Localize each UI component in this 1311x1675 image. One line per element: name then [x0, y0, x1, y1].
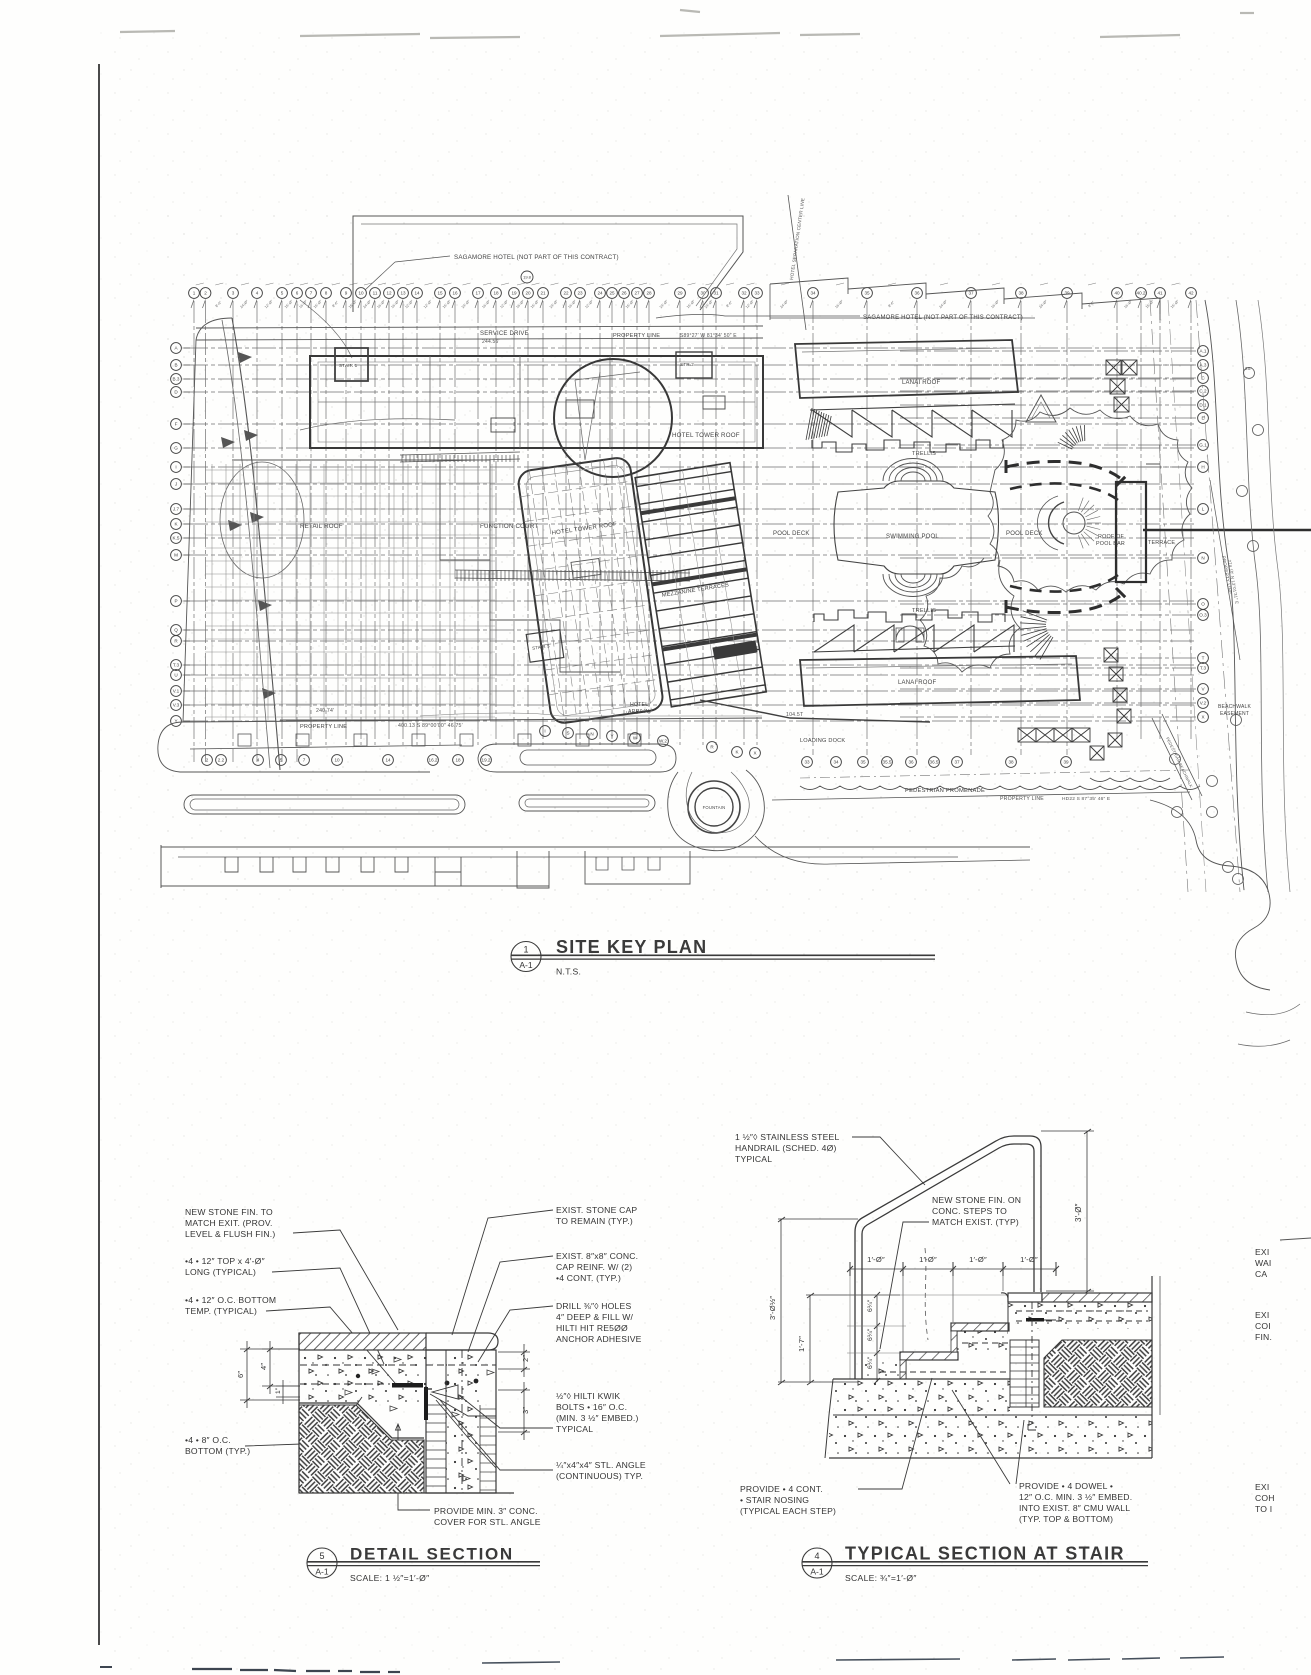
svg-text:29: 29: [677, 291, 683, 296]
svg-text:TYPICAL SECTION AT STAIR: TYPICAL SECTION AT STAIR: [845, 1544, 1125, 1564]
svg-text:W.2: W.2: [659, 739, 667, 744]
svg-text:35: 35: [860, 760, 866, 765]
svg-text:DRILL ⅜″◊ HOLES: DRILL ⅜″◊ HOLES: [556, 1301, 631, 1311]
svg-text:1: 1: [193, 291, 196, 296]
svg-text:21: 21: [540, 291, 546, 296]
svg-text:BOLTS • 16″ O.C.: BOLTS • 16″ O.C.: [556, 1402, 627, 1412]
svg-text:3′-Ø″: 3′-Ø″: [1074, 1203, 1083, 1222]
svg-text:(TYPICAL EACH STEP): (TYPICAL EACH STEP): [740, 1506, 836, 1516]
svg-text:COVER FOR STL. ANGLE: COVER FOR STL. ANGLE: [434, 1517, 541, 1527]
svg-text:TO REMAIN (TYP.): TO REMAIN (TYP.): [556, 1216, 633, 1226]
svg-text:C.2: C.2: [1199, 389, 1207, 394]
svg-text:PROPERTY LINE: PROPERTY LINE: [1000, 796, 1044, 802]
svg-text:EXI: EXI: [1255, 1482, 1269, 1492]
svg-text:U: U: [174, 673, 177, 678]
svg-text:COH: COH: [1255, 1493, 1275, 1503]
svg-text:3″: 3″: [521, 1407, 530, 1414]
svg-text:27: 27: [634, 291, 640, 296]
svg-text:Q: Q: [174, 628, 178, 633]
svg-text:ANCHOR ADHESIVE: ANCHOR ADHESIVE: [556, 1334, 642, 1344]
svg-text:L: L: [1202, 507, 1205, 512]
svg-text:LANAI ROOF: LANAI ROOF: [898, 680, 936, 686]
svg-text:TYPICAL: TYPICAL: [556, 1424, 593, 1434]
svg-text:TEMP. (TYPICAL): TEMP. (TYPICAL): [185, 1306, 257, 1316]
svg-text:CA: CA: [1255, 1269, 1267, 1279]
svg-text:LANAI ROOF: LANAI ROOF: [902, 380, 940, 386]
svg-text:P: P: [174, 599, 177, 604]
svg-text:4″ DEEP & FILL W/: 4″ DEEP & FILL W/: [556, 1312, 634, 1322]
svg-text:T.3: T.3: [1200, 666, 1207, 671]
svg-text:H: H: [1201, 465, 1204, 470]
svg-text:38: 38: [1018, 291, 1024, 296]
svg-text:PROPERTY LINE: PROPERTY LINE: [613, 333, 660, 339]
svg-text:1′-Ø″: 1′-Ø″: [969, 1255, 987, 1264]
svg-text:FOUNTAIN: FOUNTAIN: [703, 805, 726, 810]
svg-text:3: 3: [232, 291, 235, 296]
svg-text:DETAIL SECTION: DETAIL SECTION: [350, 1545, 514, 1564]
svg-text:Y: Y: [610, 734, 613, 739]
svg-text:36.5: 36.5: [930, 760, 939, 765]
svg-text:HILTI HIT RE5ØØ: HILTI HIT RE5ØØ: [556, 1323, 628, 1333]
svg-text:TRELLIS: TRELLIS: [912, 451, 936, 457]
svg-text:PROVIDE MIN. 3″ CONC.: PROVIDE MIN. 3″ CONC.: [434, 1506, 538, 1516]
svg-text:EXI: EXI: [1255, 1247, 1269, 1257]
svg-text:N: N: [1201, 556, 1204, 561]
svg-text:V.1: V.1: [173, 689, 180, 694]
svg-text:1″: 1″: [275, 1387, 282, 1394]
svg-text:20: 20: [525, 291, 531, 296]
svg-text:400.13 S 89°00′00″ 46.75′: 400.13 S 89°00′00″ 46.75′: [398, 723, 463, 729]
svg-text:COI: COI: [1255, 1321, 1271, 1331]
svg-text:½″◊ HILTI KWIK: ½″◊ HILTI KWIK: [556, 1391, 620, 1401]
svg-text:36: 36: [908, 760, 914, 765]
svg-text:2: 2: [206, 758, 209, 763]
svg-text:A-1: A-1: [315, 1567, 329, 1577]
svg-text:40: 40: [1114, 291, 1120, 296]
svg-text:POOL BAR: POOL BAR: [1096, 541, 1125, 547]
svg-text:(CONTINUOUS) TYP.: (CONTINUOUS) TYP.: [556, 1471, 643, 1481]
svg-text:K.5: K.5: [173, 536, 180, 541]
svg-text:FIN.: FIN.: [1255, 1332, 1272, 1342]
svg-text:•4 CONT. (TYP.): •4 CONT. (TYP.): [556, 1273, 621, 1283]
svg-text:37: 37: [954, 760, 960, 765]
svg-text:15: 15: [437, 291, 443, 296]
svg-text:41: 41: [1157, 291, 1163, 296]
svg-text:16: 16: [452, 291, 458, 296]
svg-text:SAGAMORE HOTEL (NOT PART OF TH: SAGAMORE HOTEL (NOT PART OF THIS CONTRAC…: [454, 254, 619, 261]
svg-text:SAGAMORE HOTEL (NOT PART OF TH: SAGAMORE HOTEL (NOT PART OF THIS CONTRAC…: [863, 315, 1023, 321]
svg-text:(TYP. TOP & BOTTOM): (TYP. TOP & BOTTOM): [1019, 1514, 1113, 1524]
svg-text:11: 11: [373, 291, 378, 296]
svg-text:N.T.S.: N.T.S.: [556, 967, 581, 977]
svg-text:EXIST. 8″x8″ CONC.: EXIST. 8″x8″ CONC.: [556, 1251, 638, 1261]
svg-text:104.5T: 104.5T: [786, 712, 804, 718]
svg-text:LEVEL & FLUSH FIN.): LEVEL & FLUSH FIN.): [185, 1229, 275, 1239]
svg-text:14: 14: [414, 291, 420, 296]
svg-text:CONC. STEPS TO: CONC. STEPS TO: [932, 1206, 1007, 1216]
svg-text:HD22 S 87°35′ 46″ E: HD22 S 87°35′ 46″ E: [1062, 796, 1110, 802]
svg-text:X: X: [753, 751, 756, 756]
svg-text:•4 • 8″ O.C.: •4 • 8″ O.C.: [185, 1435, 231, 1445]
svg-text:5: 5: [319, 1551, 324, 1561]
svg-text:TERRACE: TERRACE: [1148, 540, 1175, 546]
svg-text:POOL DECK: POOL DECK: [773, 531, 810, 537]
svg-text:8: 8: [325, 291, 328, 296]
svg-text:5: 5: [280, 758, 283, 763]
svg-text:19.8: 19.8: [523, 274, 532, 279]
svg-text:A.1: A.1: [1200, 349, 1207, 354]
svg-text:J: J: [175, 482, 177, 487]
svg-text:34: 34: [833, 760, 839, 765]
svg-text:BOTTOM (TYP.): BOTTOM (TYP.): [185, 1446, 250, 1456]
svg-text:G: G: [174, 446, 178, 451]
svg-text:O: O: [1201, 602, 1205, 607]
svg-text:12: 12: [386, 291, 392, 296]
svg-text:WAI: WAI: [1255, 1258, 1272, 1268]
svg-text:TO I: TO I: [1255, 1504, 1272, 1514]
svg-text:1: 1: [523, 945, 528, 955]
svg-text:• STAIR NOSING: • STAIR NOSING: [740, 1495, 809, 1505]
svg-text:M: M: [174, 553, 178, 558]
svg-text:17: 17: [475, 291, 481, 296]
svg-text:4: 4: [814, 1551, 819, 1561]
svg-text:24: 24: [597, 291, 603, 296]
svg-text:NEW STONE FIN. TO: NEW STONE FIN. TO: [185, 1207, 273, 1217]
svg-text:4: 4: [257, 758, 260, 763]
svg-text:T.3: T.3: [173, 663, 180, 668]
svg-text:2.2: 2.2: [218, 758, 225, 763]
svg-text:SCALE: 1 ½″=1′-Ø″: SCALE: 1 ½″=1′-Ø″: [350, 1573, 429, 1583]
svg-text:S: S: [566, 731, 569, 736]
svg-text:O.3: O.3: [1199, 613, 1207, 618]
svg-text:34: 34: [810, 291, 816, 296]
svg-text:V.2: V.2: [1200, 701, 1207, 706]
svg-text:22: 22: [563, 291, 569, 296]
svg-text:SCALE: ¾″=1′-Ø″: SCALE: ¾″=1′-Ø″: [845, 1573, 917, 1583]
svg-text:PROPERTY LINE: PROPERTY LINE: [300, 724, 347, 730]
svg-text:14: 14: [385, 758, 391, 763]
svg-text:6: 6: [296, 291, 299, 296]
svg-text:B: B: [174, 363, 177, 368]
svg-text:33: 33: [804, 760, 810, 765]
svg-text:F: F: [175, 422, 178, 427]
svg-text:B.3: B.3: [173, 377, 180, 382]
svg-text:I: I: [175, 465, 176, 470]
svg-text:1′-Ø″: 1′-Ø″: [919, 1255, 937, 1264]
svg-text:28: 28: [646, 291, 652, 296]
svg-text:23: 23: [577, 291, 583, 296]
svg-text:19.2: 19.2: [482, 758, 491, 763]
svg-text:3′-Ø½″: 3′-Ø½″: [768, 1296, 777, 1320]
svg-text:STAIR 1: STAIR 1: [339, 363, 358, 368]
svg-text:35: 35: [864, 291, 870, 296]
svg-text:LONG (TYPICAL): LONG (TYPICAL): [185, 1267, 256, 1277]
svg-text:7: 7: [310, 291, 313, 296]
svg-text:42: 42: [1188, 291, 1194, 296]
svg-text:HANDRAIL (SCHED. 4Ø): HANDRAIL (SCHED. 4Ø): [735, 1143, 837, 1153]
svg-text:W: W: [633, 736, 638, 741]
svg-text:CAP REINF. W/ (2): CAP REINF. W/ (2): [556, 1262, 632, 1272]
svg-text:25′: 25′: [1245, 366, 1252, 372]
svg-text:HOTEL: HOTEL: [630, 702, 648, 708]
svg-text:BEACHWALK: BEACHWALK: [1218, 704, 1251, 710]
svg-text:E: E: [1201, 416, 1204, 421]
svg-text:18: 18: [455, 758, 461, 763]
svg-text:5: 5: [281, 291, 284, 296]
svg-text:33: 33: [754, 291, 760, 296]
svg-text:D.1: D.1: [1199, 403, 1207, 408]
svg-text:EXIST. STONE CAP: EXIST. STONE CAP: [556, 1205, 637, 1215]
svg-text:12″ O.C. MIN. 3 ½″ EMBED.: 12″ O.C. MIN. 3 ½″ EMBED.: [1019, 1492, 1132, 1502]
svg-text:SERVICE DRIVE: SERVICE DRIVE: [480, 331, 529, 337]
svg-text:39: 39: [1064, 291, 1070, 296]
svg-text:V.3: V.3: [173, 703, 180, 708]
svg-text:16.2: 16.2: [429, 758, 438, 763]
svg-text:T: T: [1202, 656, 1205, 661]
svg-text:MATCH EXIST. (TYP): MATCH EXIST. (TYP): [932, 1217, 1019, 1227]
svg-text:35.5: 35.5: [883, 760, 892, 765]
svg-text:(MIN. 3 ½″ EMBED.): (MIN. 3 ½″ EMBED.): [556, 1413, 639, 1423]
svg-text:25: 25: [609, 291, 615, 296]
svg-text:•4 • 12″ TOP x 4′-Ø″: •4 • 12″ TOP x 4′-Ø″: [185, 1256, 265, 1266]
svg-text:¼″x4″x4″ STL. ANGLE: ¼″x4″x4″ STL. ANGLE: [556, 1460, 646, 1470]
svg-text:S89°27′ W 81°34′ 50″ E: S89°27′ W 81°34′ 50″ E: [680, 333, 737, 339]
svg-text:TYPICAL: TYPICAL: [735, 1154, 772, 1164]
svg-text:INTO EXIST. 8″ CMU WALL: INTO EXIST. 8″ CMU WALL: [1019, 1503, 1130, 1513]
svg-text:J.7: J.7: [173, 507, 180, 512]
svg-text:SWIMMING POOL: SWIMMING POOL: [886, 534, 939, 540]
svg-text:ARRIVAL: ARRIVAL: [628, 709, 651, 715]
svg-text:26: 26: [621, 291, 627, 296]
svg-text:13: 13: [400, 291, 406, 296]
svg-text:1′-Ø″: 1′-Ø″: [1020, 1255, 1038, 1264]
svg-text:PROVIDE • 4 CONT.: PROVIDE • 4 CONT.: [740, 1484, 823, 1494]
svg-text:37: 37: [968, 291, 974, 296]
svg-text:HOTEL TOWER ROOF: HOTEL TOWER ROOF: [672, 432, 740, 439]
svg-text:G.1: G.1: [1199, 443, 1207, 448]
svg-text:9: 9: [345, 291, 348, 296]
svg-text:36: 36: [914, 291, 920, 296]
svg-text:LOADING DOCK: LOADING DOCK: [800, 738, 845, 744]
svg-text:•4 • 12″ O.C. BOTTOM: •4 • 12″ O.C. BOTTOM: [185, 1295, 276, 1305]
svg-text:POOL DECK: POOL DECK: [1006, 531, 1043, 537]
svg-text:10: 10: [358, 291, 364, 296]
svg-text:RETAIL ROOF: RETAIL ROOF: [300, 523, 343, 530]
svg-text:A-1: A-1: [810, 1567, 824, 1577]
svg-text:MATCH EXIT. (PROV.: MATCH EXIT. (PROV.: [185, 1218, 273, 1228]
svg-text:6¼″: 6¼″: [867, 1328, 874, 1341]
svg-text:4″: 4″: [259, 1363, 268, 1370]
svg-text:7: 7: [303, 758, 306, 763]
svg-text:38: 38: [1008, 760, 1014, 765]
svg-text:X: X: [1201, 715, 1204, 720]
svg-text:NEW STONE FIN. ON: NEW STONE FIN. ON: [932, 1195, 1021, 1205]
svg-text:32: 32: [741, 291, 747, 296]
svg-text:N: N: [590, 732, 593, 737]
svg-text:1′-7″: 1′-7″: [797, 1336, 806, 1352]
svg-text:1′-Ø″: 1′-Ø″: [867, 1255, 885, 1264]
svg-text:FUNCTION COURT: FUNCTION COURT: [480, 523, 538, 530]
svg-text:EXI: EXI: [1255, 1310, 1269, 1320]
svg-text:TRELLIS: TRELLIS: [912, 608, 936, 614]
svg-text:6″: 6″: [236, 1371, 245, 1378]
svg-text:4: 4: [256, 291, 259, 296]
svg-text:244.56′: 244.56′: [482, 339, 500, 345]
svg-text:19: 19: [511, 291, 517, 296]
svg-text:2″: 2″: [521, 1355, 530, 1362]
svg-text:6¼″: 6¼″: [867, 1299, 874, 1312]
svg-text:PROVIDE • 4 DOWEL •: PROVIDE • 4 DOWEL •: [1019, 1481, 1113, 1491]
svg-text:18: 18: [493, 291, 499, 296]
svg-text:STR.2: STR.2: [680, 362, 694, 367]
svg-text:39: 39: [1063, 760, 1069, 765]
svg-text:EASEMENT: EASEMENT: [1220, 711, 1249, 717]
svg-text:2: 2: [204, 291, 207, 296]
svg-text:40.2: 40.2: [1137, 291, 1146, 296]
svg-text:1 ½″◊ STAINLESS STEEL: 1 ½″◊ STAINLESS STEEL: [735, 1132, 839, 1142]
svg-text:10: 10: [334, 758, 340, 763]
svg-text:240.74′: 240.74′: [316, 708, 334, 714]
svg-text:ROOF OF: ROOF OF: [1098, 534, 1124, 540]
svg-text:I: I: [544, 729, 545, 734]
svg-text:A-1: A-1: [519, 960, 533, 970]
svg-text:SITE KEY PLAN: SITE KEY PLAN: [556, 937, 707, 957]
